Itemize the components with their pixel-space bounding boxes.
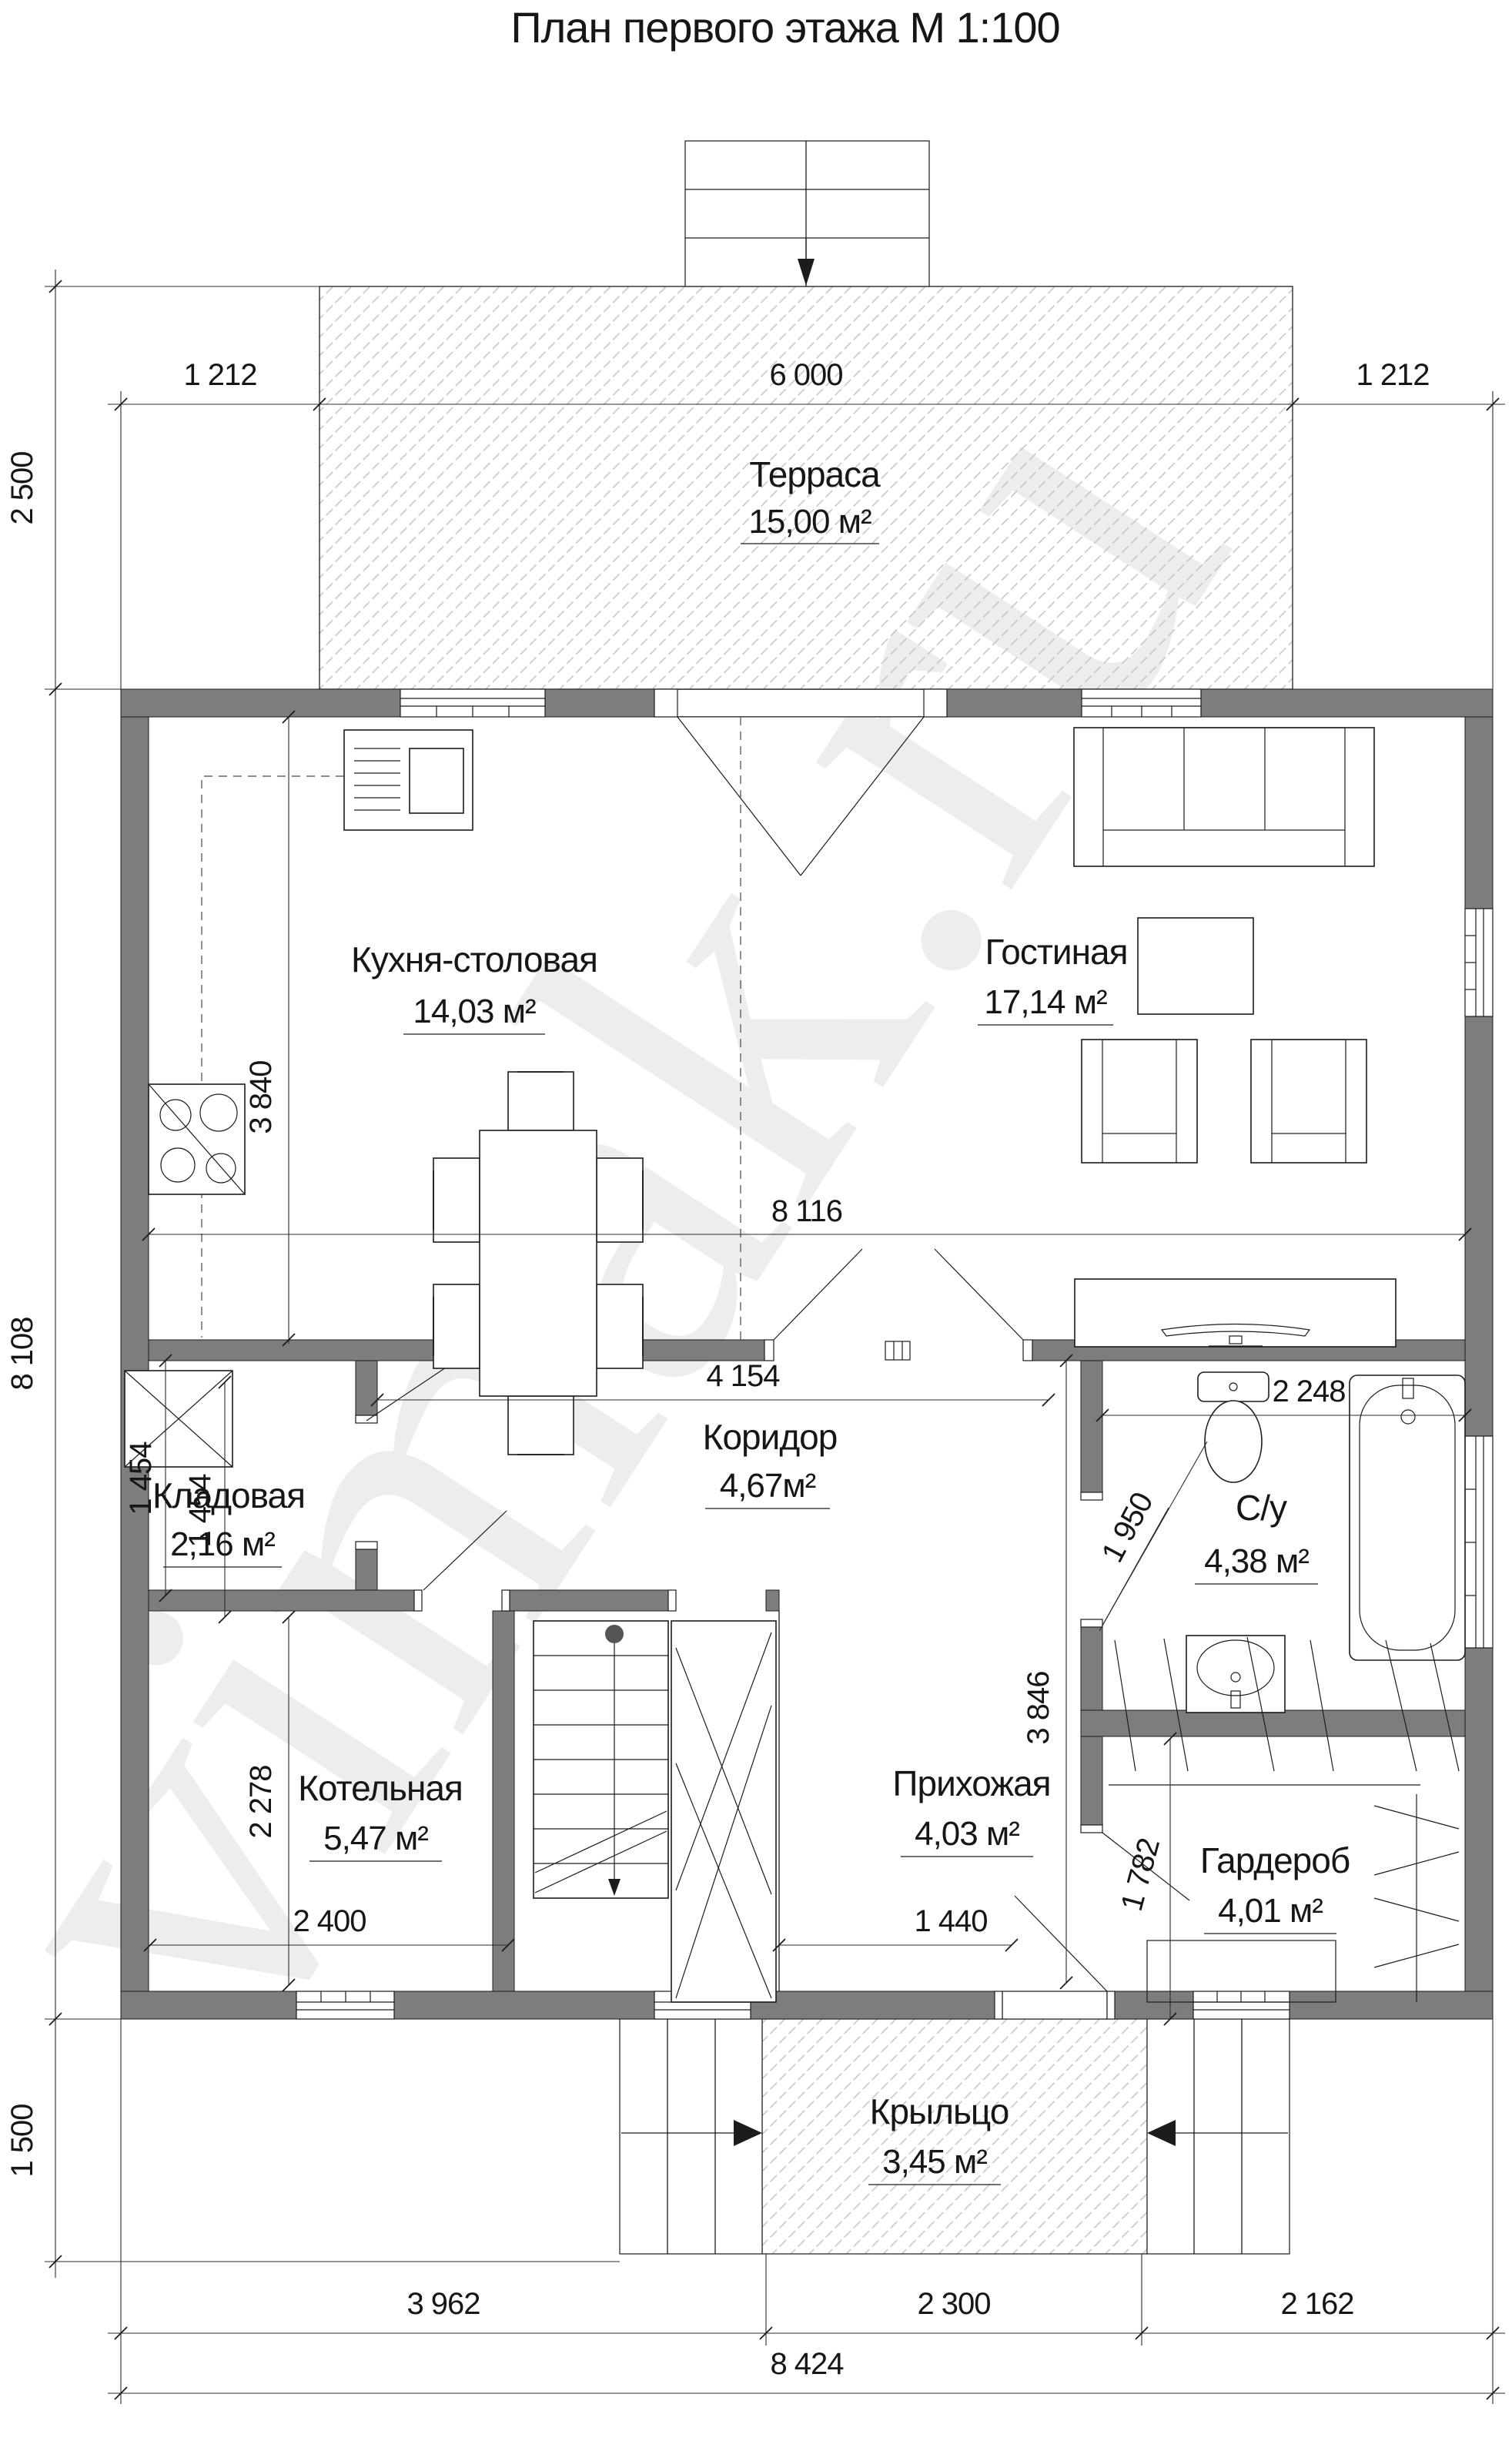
- dim-bottom-right: 2 162: [1280, 2287, 1353, 2321]
- porch: [620, 2019, 1290, 2254]
- chimney-icon: [685, 141, 929, 286]
- dim-hall-width: 1 440: [914, 1904, 987, 1938]
- wall-vent: [885, 1341, 910, 1360]
- room-name: Крыльцо: [870, 2091, 1009, 2131]
- room-area: 17,14 м²: [984, 983, 1107, 1021]
- stair-closet-icon: [671, 1621, 776, 2002]
- page-title: План первого этажа М 1:100: [510, 3, 1059, 52]
- room-area: 3,45 м²: [882, 2143, 987, 2181]
- stove-icon: [149, 1084, 245, 1194]
- dim-boiler-width: 2 400: [293, 1904, 366, 1938]
- room-area: 2,16 м²: [170, 1525, 275, 1563]
- dim-left-terrace: 2 500: [5, 451, 39, 524]
- dim-interior-width: 8 116: [771, 1194, 842, 1228]
- room-name: Гардероб: [1200, 1840, 1350, 1880]
- dim-bathroom-width: 2 248: [1272, 1375, 1345, 1408]
- room-area: 15,00 м²: [748, 503, 871, 541]
- floor-plan-drawing: vimak.ru: [0, 0, 1512, 2441]
- dim-top-left: 1 212: [183, 358, 256, 392]
- dim-corridor-width: 4 154: [706, 1359, 780, 1393]
- dim-top-center: 6 000: [769, 358, 842, 392]
- room-area: 4,01 м²: [1218, 1892, 1323, 1930]
- stairs-icon: [534, 1621, 668, 1898]
- living-right-window: [1465, 909, 1493, 1016]
- dim-kitchen-depth: 3 840: [244, 1060, 278, 1133]
- room-name: Терраса: [749, 454, 881, 494]
- coffee-table-icon: [1138, 918, 1253, 1014]
- dim-boiler-height: 2 278: [244, 1765, 278, 1838]
- boiler-window: [296, 1991, 394, 2019]
- dim-bottom-left: 3 962: [406, 2287, 480, 2321]
- room-name: Кладовая: [152, 1475, 305, 1515]
- room-area: 14,03 м²: [413, 993, 536, 1030]
- floor-plan-sheet: vimak.ru: [0, 0, 1512, 2441]
- room-name: Гостиная: [985, 932, 1127, 972]
- dim-left-house: 8 108: [5, 1317, 39, 1390]
- room-area: 4,03 м²: [915, 1815, 1019, 1853]
- bathtub-icon: [1350, 1375, 1465, 1660]
- porch-steps-left: [620, 2019, 762, 2254]
- tv-console-icon: [1075, 1279, 1396, 1347]
- sink-icon: [1186, 1636, 1285, 1713]
- sofa-icon: [1074, 728, 1374, 866]
- armchair-icon: [1082, 1040, 1197, 1163]
- dim-hall-height: 3 846: [1022, 1671, 1055, 1744]
- dim-top-right: 1 212: [1356, 358, 1429, 392]
- porch-steps-right: [1147, 2019, 1290, 2254]
- room-area: 5,47 м²: [323, 1820, 428, 1857]
- dim-total-width: 8 424: [770, 2347, 844, 2381]
- dim-left-porch: 1 500: [5, 2104, 39, 2177]
- armchair-icon: [1251, 1040, 1366, 1163]
- room-name: Прихожая: [892, 1763, 1050, 1803]
- sink-unit-icon: [344, 730, 473, 830]
- room-name: С/у: [1236, 1488, 1287, 1528]
- room-area: 4,67м²: [720, 1467, 816, 1505]
- wardrobe-window: [1193, 1991, 1290, 2019]
- room-name: Коридор: [703, 1417, 838, 1457]
- bathroom-window: [1465, 1436, 1493, 1648]
- dim-bottom-center: 2 300: [917, 2287, 990, 2321]
- newel-post-icon: [605, 1625, 624, 1643]
- room-name: Кухня-столовая: [351, 939, 597, 979]
- kitchen-window: [400, 689, 545, 717]
- living-top-window: [1082, 689, 1201, 717]
- room-name: Котельная: [298, 1768, 463, 1808]
- room-area: 4,38 м²: [1204, 1542, 1309, 1580]
